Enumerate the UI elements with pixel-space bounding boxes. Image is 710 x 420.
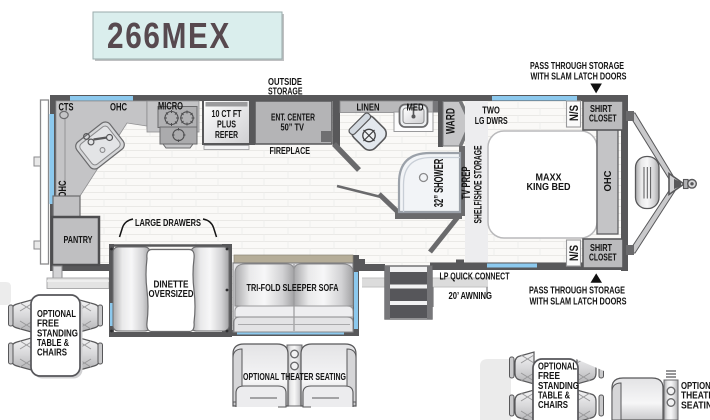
svg-text:CLOSET: CLOSET: [589, 113, 617, 125]
svg-text:STORAGE: STORAGE: [268, 86, 303, 98]
svg-text:KING BED: KING BED: [527, 182, 571, 193]
svg-text:FIREPLACE: FIREPLACE: [270, 145, 311, 157]
svg-text:50” TV: 50” TV: [281, 122, 305, 134]
svg-text:TRI-FOLD SLEEPER SOFA: TRI-FOLD SLEEPER SOFA: [247, 283, 339, 294]
svg-text:SEATING: SEATING: [681, 400, 710, 411]
svg-text:CHAIRS: CHAIRS: [538, 400, 568, 411]
svg-text:CHAIRS: CHAIRS: [37, 348, 67, 359]
svg-text:20’ AWNING: 20’ AWNING: [449, 290, 493, 302]
svg-text:LARGE DRAWERS: LARGE DRAWERS: [135, 217, 201, 229]
svg-text:SHELF/SHOE STORAGE: SHELF/SHOE STORAGE: [473, 146, 485, 224]
svg-text:OVERSIZED: OVERSIZED: [149, 289, 194, 300]
svg-text:OPTIONAL THEATER SEATING: OPTIONAL THEATER SEATING: [243, 372, 346, 383]
svg-text:266MEX: 266MEX: [107, 15, 231, 56]
svg-text:WITH SLAM LATCH DOORS: WITH SLAM LATCH DOORS: [530, 295, 627, 307]
svg-text:N/S: N/S: [567, 105, 581, 121]
svg-text:LG DWRS: LG DWRS: [475, 115, 508, 127]
svg-text:OHC: OHC: [57, 180, 69, 197]
svg-text:N/S: N/S: [567, 245, 581, 261]
svg-text:MED: MED: [407, 101, 424, 113]
svg-text:PANTRY: PANTRY: [64, 234, 93, 246]
svg-text:CLOSET: CLOSET: [589, 252, 617, 264]
svg-text:TV PREP: TV PREP: [461, 166, 473, 199]
svg-text:OHC: OHC: [603, 171, 614, 192]
svg-text:WITH SLAM LATCH DOORS: WITH SLAM LATCH DOORS: [531, 71, 627, 83]
svg-text:MICRO: MICRO: [158, 101, 183, 113]
svg-text:OHC: OHC: [110, 102, 127, 114]
svg-text:REFER: REFER: [215, 129, 238, 141]
svg-text:LINEN: LINEN: [357, 101, 380, 113]
svg-text:LP QUICK CONNECT: LP QUICK CONNECT: [440, 271, 510, 283]
svg-text:WARD: WARD: [444, 108, 458, 134]
svg-text:32” SHOWER: 32” SHOWER: [431, 158, 446, 207]
